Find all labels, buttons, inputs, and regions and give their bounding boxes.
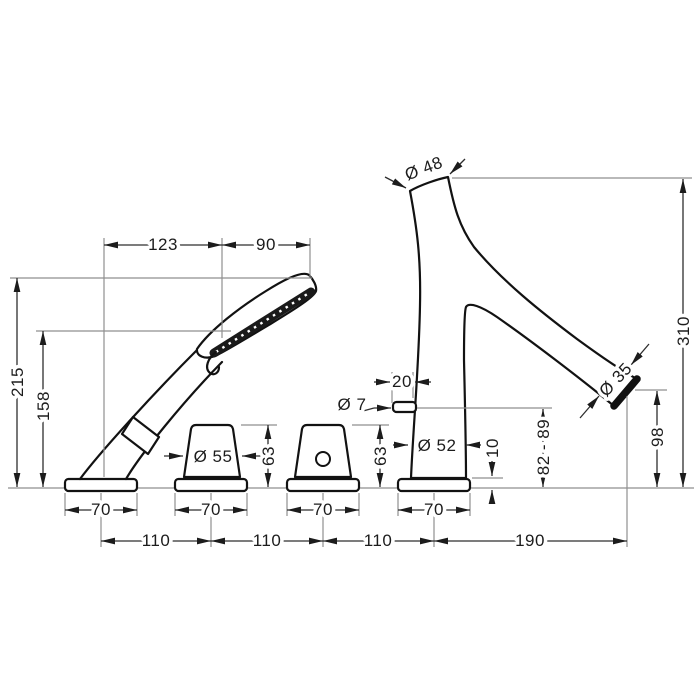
dim-arrow-d35-top: [631, 344, 649, 365]
dim-label-20: 20: [392, 372, 412, 391]
dim-label-123: 123: [148, 235, 178, 254]
hand-shower-head: [197, 274, 316, 358]
dim-arrow-d48-right: [450, 159, 465, 174]
dim-label-98: 98: [648, 427, 667, 447]
base-plate-spout: [398, 479, 470, 491]
dimension-drawing: 123 90 215 158 63 63 Ø 55 Ø 52 20 Ø 7 Ø …: [0, 0, 700, 700]
technical-drawing-canvas: 123 90 215 158 63 63 Ø 55 Ø 52 20 Ø 7 Ø …: [0, 0, 700, 700]
dim-label-70-4: 70: [424, 500, 444, 519]
dim-label-310: 310: [674, 316, 693, 346]
dim-label-90: 90: [256, 235, 276, 254]
dim-label-110-2: 110: [253, 531, 282, 550]
base-plate-hand-shower: [65, 479, 137, 491]
dim-label-70-3: 70: [313, 500, 333, 519]
dim-label-10: 10: [483, 438, 502, 458]
base-plate-handle: [175, 479, 247, 491]
dim-label-63-left: 63: [259, 446, 278, 466]
hose-nub: [393, 402, 416, 412]
dim-label-215: 215: [8, 367, 27, 397]
dim-label-158: 158: [34, 391, 53, 421]
base-plate-diverter: [287, 479, 359, 491]
spout: [393, 177, 637, 478]
dim-label-d55: Ø 55: [194, 447, 233, 466]
dim-label-190: 190: [515, 531, 545, 550]
dim-label-d52: Ø 52: [418, 436, 457, 455]
dim-label-82-89: 82 - 89: [534, 419, 553, 475]
dim-label-110-1: 110: [142, 531, 171, 550]
dim-arrow-d35-bottom: [580, 396, 599, 418]
dim-label-70-1: 70: [91, 500, 111, 519]
spout-body: [410, 177, 637, 478]
dim-label-110-3: 110: [364, 531, 393, 550]
diverter-knob: [295, 425, 351, 477]
dim-label-63-right: 63: [371, 446, 390, 466]
dim-label-70-2: 70: [201, 500, 221, 519]
dim-label-d7: Ø 7: [338, 395, 367, 414]
dim-arrow-d48-left: [385, 177, 406, 188]
